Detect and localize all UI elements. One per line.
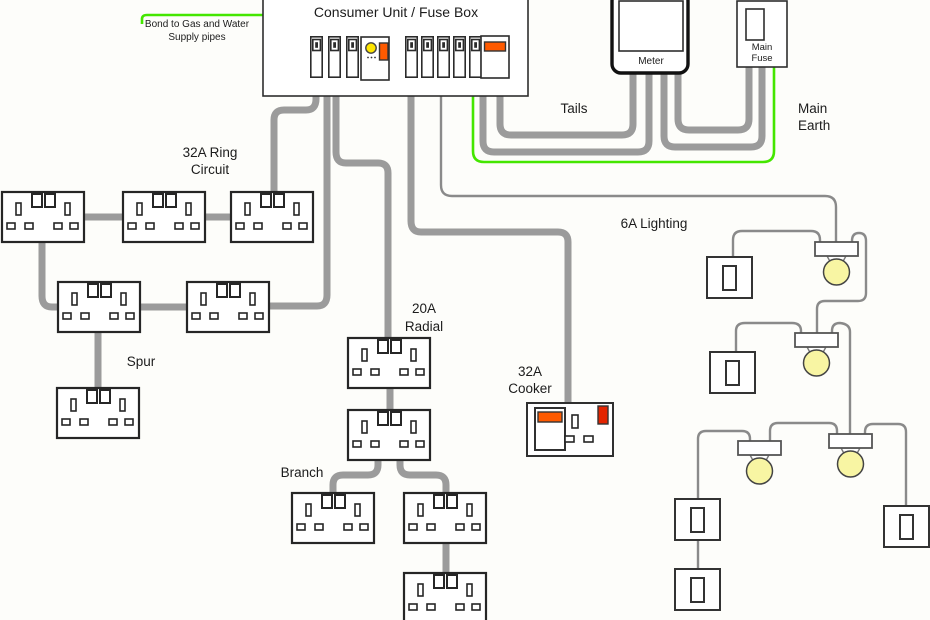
radial-socket-1 xyxy=(348,338,430,388)
rcd-test-switch xyxy=(380,43,389,60)
meter-display xyxy=(619,1,683,51)
main-switch-bar xyxy=(485,42,506,51)
main-fuse-label-line2: Fuse xyxy=(751,53,772,64)
ceiling-light-1 xyxy=(815,242,858,285)
electricity-meter: Meter xyxy=(612,0,688,73)
branch-socket-3 xyxy=(404,573,486,620)
rcd-unit xyxy=(361,37,389,80)
rcd-label-dot xyxy=(371,57,373,59)
light2-switch-wire xyxy=(736,323,801,352)
circuit-breaker xyxy=(454,37,465,77)
cooker-neon-indicator xyxy=(598,406,608,424)
ring-socket-1 xyxy=(2,192,84,242)
light4-to-light3-wire xyxy=(770,423,837,441)
wiring-diagram-canvas: Consumer Unit / Fuse Box Meter Main xyxy=(0,0,930,620)
light1-switch-wire xyxy=(733,231,820,257)
light-switch-1 xyxy=(707,257,752,298)
rcd-label-dot xyxy=(367,57,369,59)
ring-socket-3 xyxy=(231,192,313,242)
branch-socket-1 xyxy=(292,493,374,543)
cooker-feed-wire xyxy=(411,96,568,403)
branch-socket-2 xyxy=(404,493,486,543)
circuit-breaker xyxy=(347,37,358,77)
main-earth-label-line2: Earth xyxy=(798,118,830,133)
ring-circuit-label-line1: 32A Ring xyxy=(183,145,238,160)
main-fuse-label-line1: Main xyxy=(752,42,773,53)
ceiling-light-2 xyxy=(795,333,838,376)
cooker-label-line1: 32A xyxy=(518,364,542,379)
rcd-label-dot xyxy=(374,57,376,59)
circuit-breaker xyxy=(406,37,417,77)
ring-circuit-label-line2: Circuit xyxy=(191,162,230,177)
main-fuse-cartridge xyxy=(746,9,764,40)
consumer-unit-title: Consumer Unit / Fuse Box xyxy=(314,4,478,20)
light-switch-3 xyxy=(675,499,720,540)
ring-feed-wire xyxy=(274,96,316,192)
circuit-breaker xyxy=(329,37,340,77)
rcd-indicator-lamp xyxy=(366,43,376,53)
branch-left-wire xyxy=(333,460,378,493)
branch-right-wire xyxy=(400,460,446,493)
light-switch-2 xyxy=(710,352,755,393)
cooker-switch-bar xyxy=(538,412,562,422)
bonding-label-line1: Bond to Gas and Water xyxy=(145,19,250,30)
cooker-socket-pin-slot xyxy=(584,436,593,442)
cooker-label-line2: Cooker xyxy=(508,381,552,396)
cooker-socket-pin-slot xyxy=(565,436,574,442)
main-fuse-unit: Main Fuse xyxy=(737,1,787,67)
ring-socket-4 xyxy=(58,282,140,332)
radial-label-line2: Radial xyxy=(405,319,443,334)
circuit-breaker xyxy=(470,37,481,77)
ring-socket-5 xyxy=(187,282,269,332)
branch-label: Branch xyxy=(281,465,324,480)
ceiling-light-4 xyxy=(829,434,872,477)
circuit-breaker xyxy=(422,37,433,77)
cooker-control-unit xyxy=(527,403,613,456)
fuse-tail-wire-inner xyxy=(678,67,749,130)
main-earth-label-line1: Main xyxy=(798,101,827,116)
radial-label-line1: 20A xyxy=(412,301,436,316)
radial-feed-wire xyxy=(336,96,388,338)
light-switch-4 xyxy=(675,569,720,610)
light-switch-5 xyxy=(884,506,929,547)
ceiling-light-3 xyxy=(738,441,781,484)
circuit-breaker xyxy=(311,37,322,77)
cooker-socket-earth-slot xyxy=(572,415,578,428)
wiring-diagram: Consumer Unit / Fuse Box Meter Main xyxy=(0,0,930,620)
circuit-breaker xyxy=(438,37,449,77)
bonding-label-line2: Supply pipes xyxy=(168,32,225,43)
meter-label: Meter xyxy=(638,56,664,67)
consumer-unit: Consumer Unit / Fuse Box xyxy=(263,0,528,96)
lighting-label: 6A Lighting xyxy=(621,216,688,231)
spur-socket xyxy=(57,388,139,438)
spur-label: Spur xyxy=(127,354,156,369)
ring-socket-2 xyxy=(123,192,205,242)
main-switch-unit xyxy=(481,36,509,78)
radial-socket-2 xyxy=(348,410,430,460)
ring-link-wire xyxy=(42,242,58,307)
tails-label: Tails xyxy=(560,101,587,116)
